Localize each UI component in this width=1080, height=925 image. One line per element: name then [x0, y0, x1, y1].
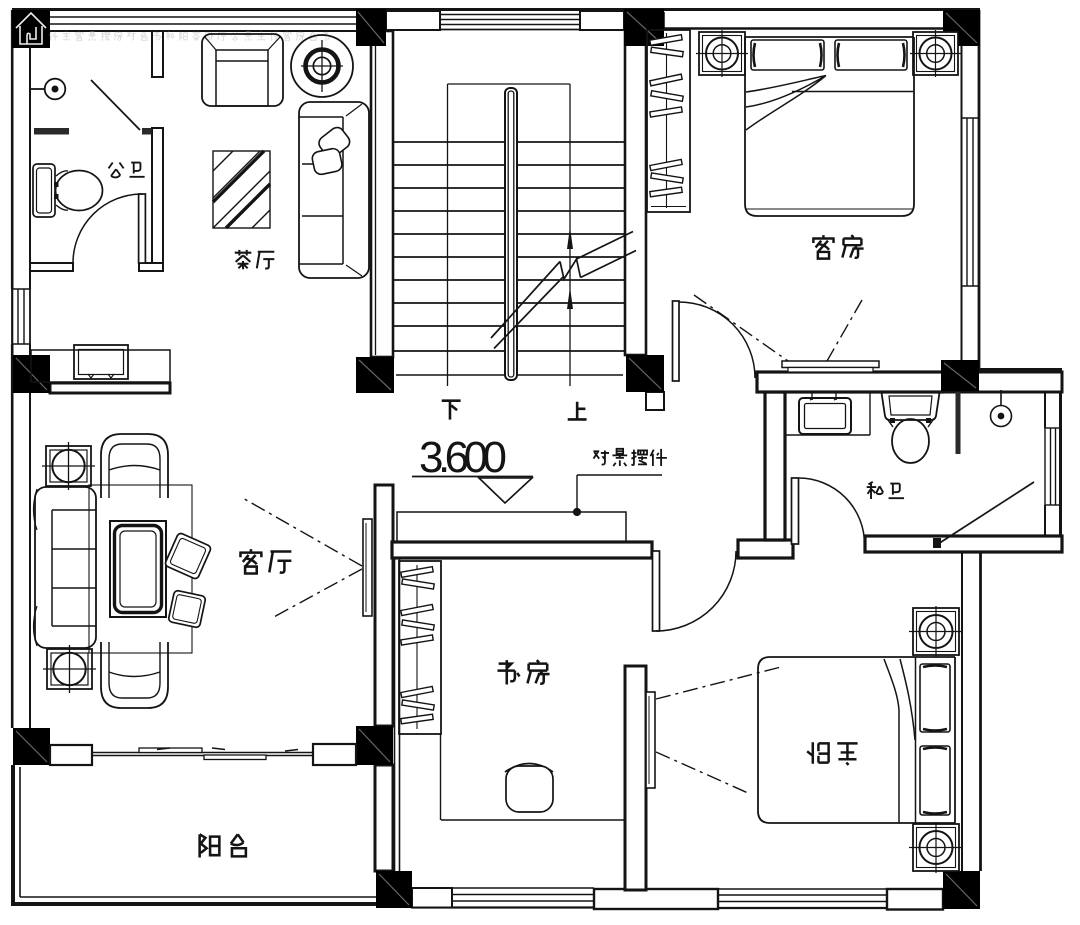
- svg-text:3.600: 3.600: [419, 433, 507, 482]
